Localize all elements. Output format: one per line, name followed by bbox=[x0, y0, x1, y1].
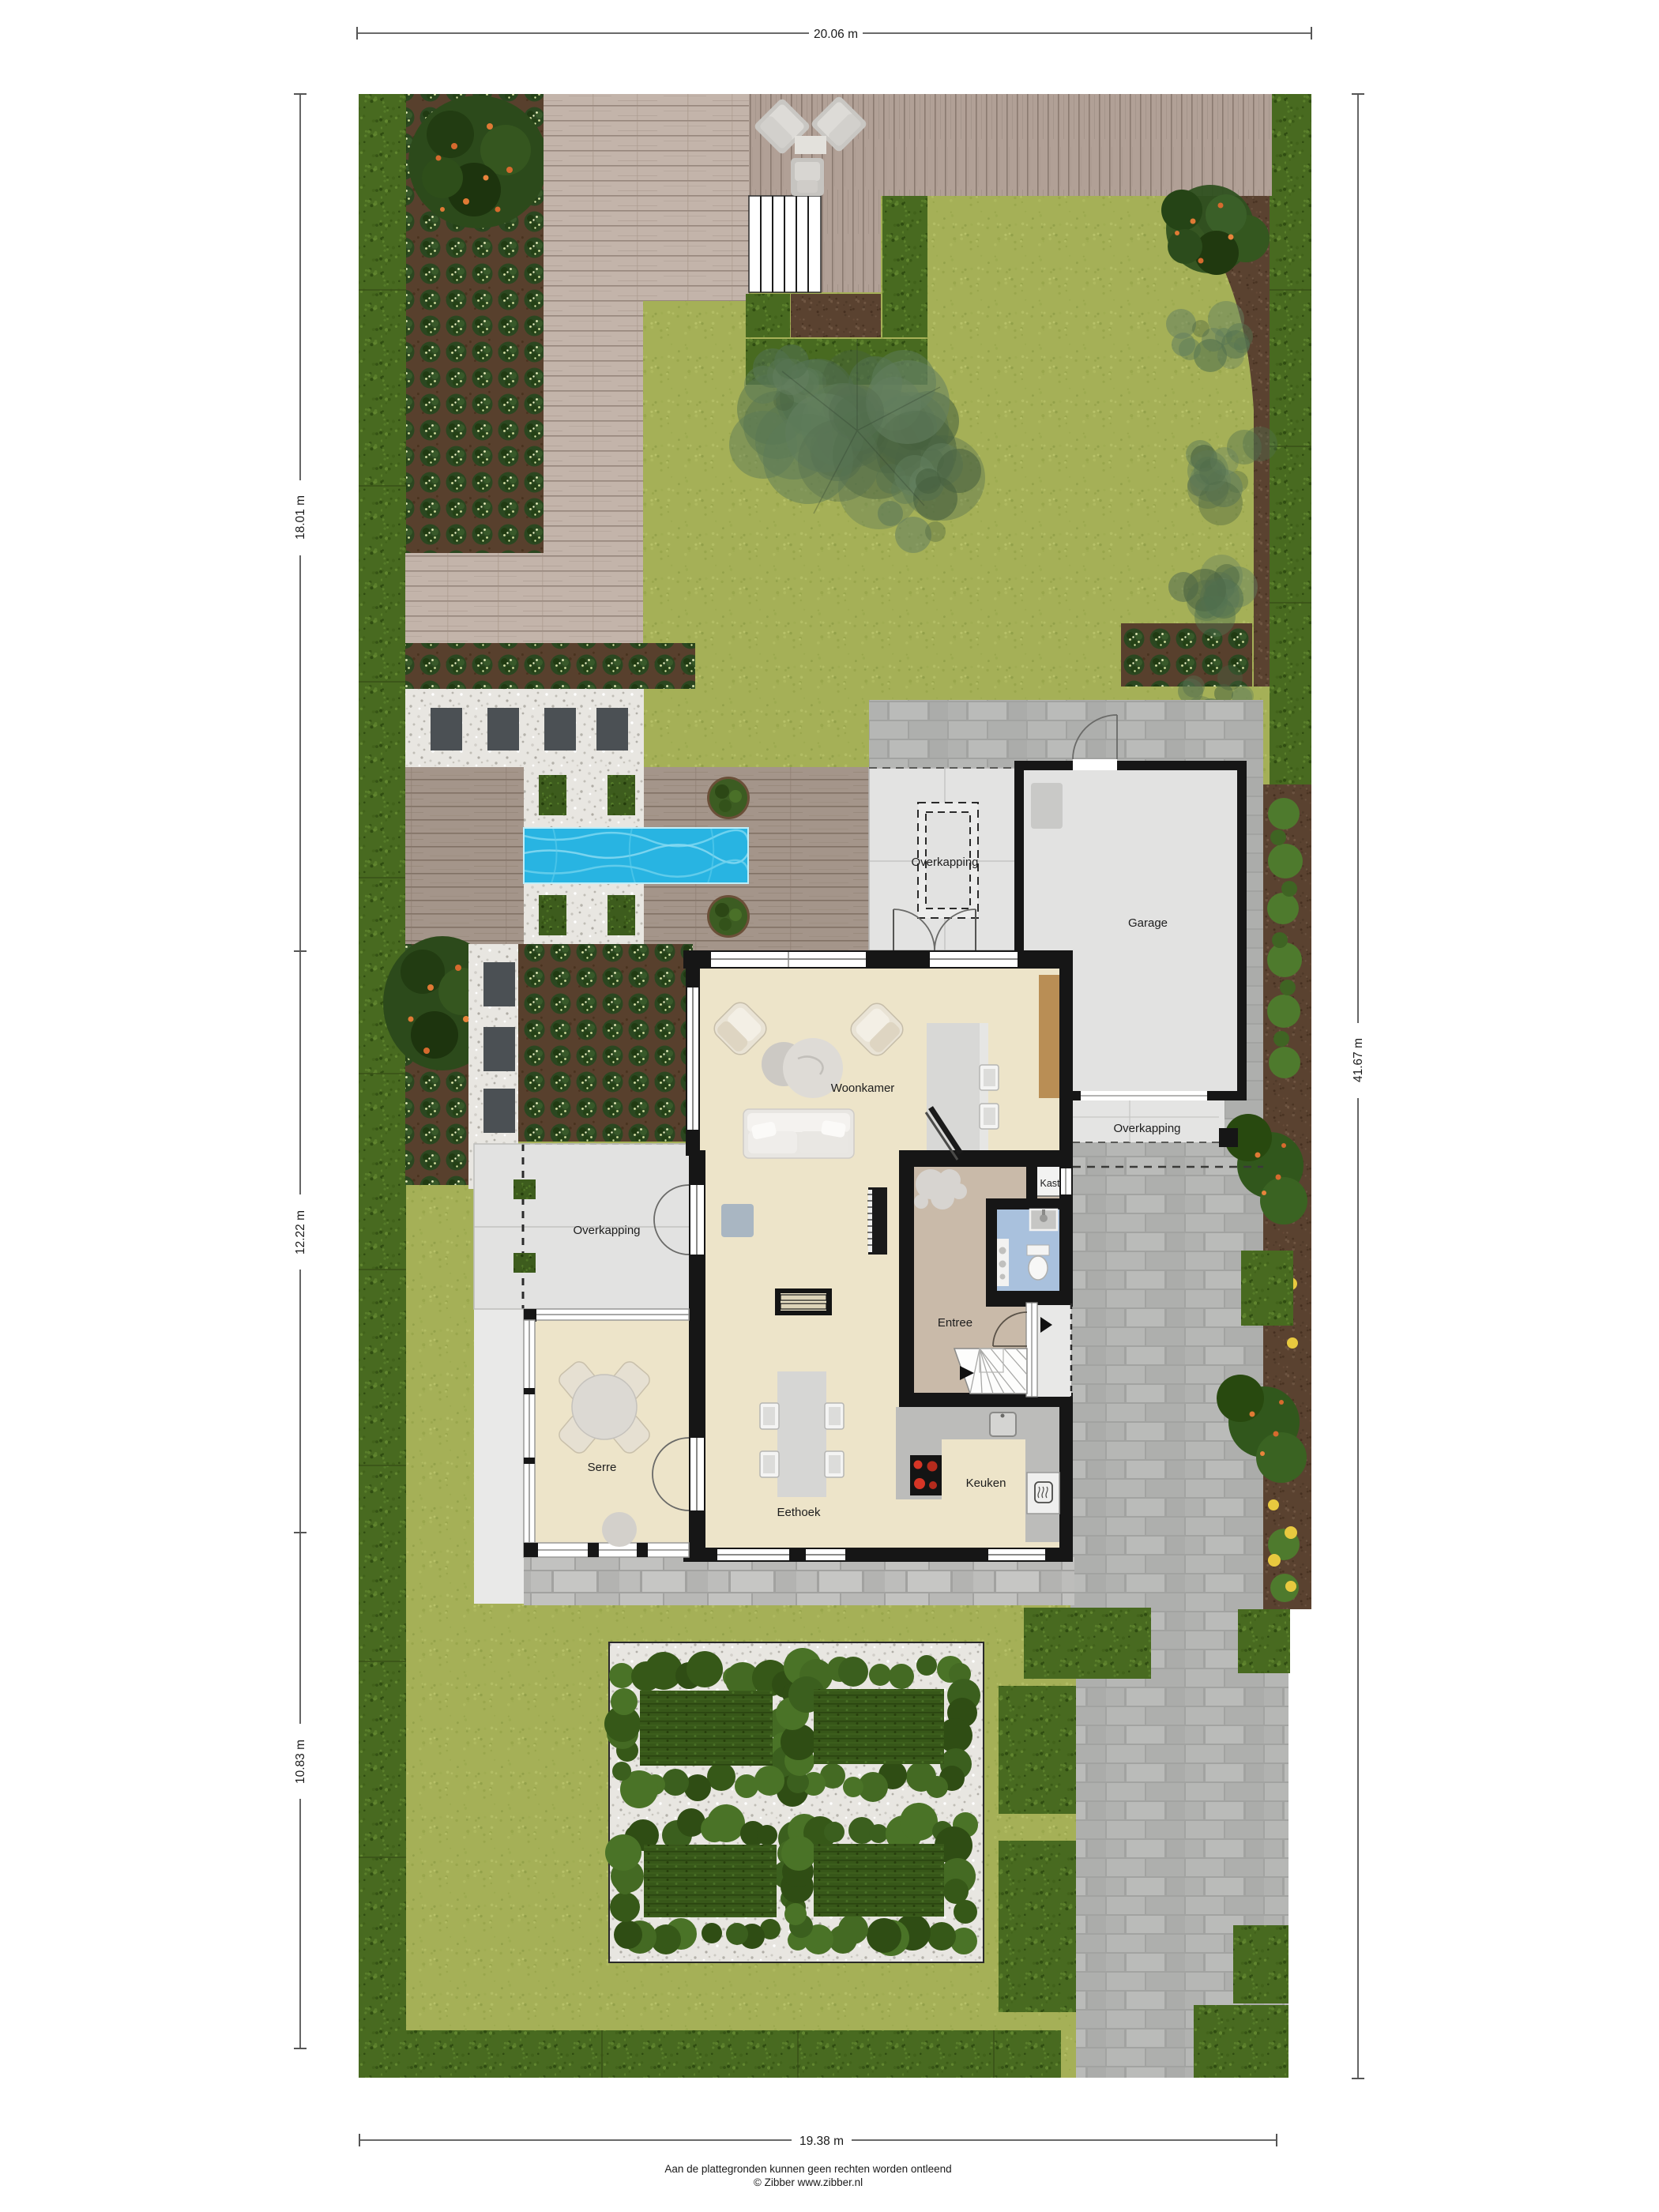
svg-text:Overkapping: Overkapping bbox=[1113, 1122, 1180, 1135]
svg-text:Overkapping: Overkapping bbox=[573, 1224, 640, 1237]
svg-text:Overkapping: Overkapping bbox=[911, 856, 978, 869]
svg-text:12.22 m: 12.22 m bbox=[294, 1210, 307, 1255]
svg-text:Garage: Garage bbox=[1128, 916, 1168, 930]
svg-text:20.06 m: 20.06 m bbox=[814, 28, 858, 41]
svg-text:41.67 m: 41.67 m bbox=[1352, 1038, 1365, 1082]
svg-text:Entree: Entree bbox=[938, 1316, 972, 1330]
svg-text:Aan de plattegronden kunnen ge: Aan de plattegronden kunnen geen rechten… bbox=[664, 2163, 951, 2175]
svg-text:Eethoek: Eethoek bbox=[777, 1506, 821, 1519]
svg-text:18.01 m: 18.01 m bbox=[294, 495, 307, 540]
svg-text:Woonkamer: Woonkamer bbox=[831, 1082, 895, 1095]
svg-text:Keuken: Keuken bbox=[966, 1477, 1006, 1490]
svg-text:Serre: Serre bbox=[588, 1461, 617, 1474]
svg-text:© Zibber www.zibber.nl: © Zibber www.zibber.nl bbox=[754, 2176, 863, 2188]
svg-text:19.38 m: 19.38 m bbox=[799, 2135, 844, 2148]
svg-text:10.83 m: 10.83 m bbox=[294, 1740, 307, 1784]
svg-text:Kast: Kast bbox=[1040, 1178, 1060, 1189]
